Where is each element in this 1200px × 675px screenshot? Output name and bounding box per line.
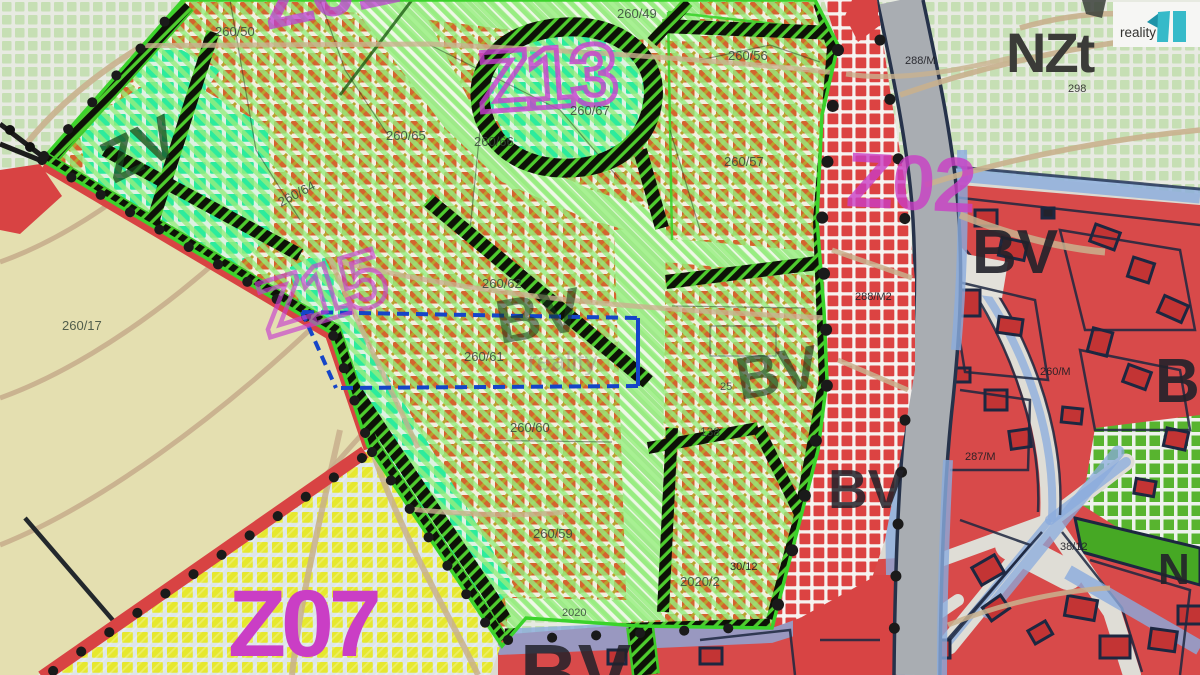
svg-text:260/50: 260/50: [215, 24, 255, 39]
svg-text:260/M: 260/M: [1040, 366, 1071, 378]
svg-text:260/56: 260/56: [728, 48, 768, 63]
svg-text:BV: BV: [520, 628, 631, 675]
svg-text:25: 25: [720, 381, 732, 393]
svg-text:260/49: 260/49: [617, 6, 657, 21]
svg-text:BV: BV: [828, 458, 905, 520]
svg-text:BV: BV: [972, 218, 1058, 287]
svg-text:298: 298: [1068, 83, 1086, 95]
svg-text:38/12: 38/12: [1060, 541, 1088, 553]
svg-text:260/65: 260/65: [386, 128, 426, 143]
svg-text:2020/2: 2020/2: [680, 574, 720, 589]
svg-text:N: N: [1158, 545, 1190, 594]
svg-text:Z07: Z07: [228, 571, 378, 675]
svg-text:260/59: 260/59: [533, 526, 573, 541]
svg-text:BV: BV: [1155, 347, 1200, 416]
svg-text:260/67: 260/67: [570, 103, 610, 118]
svg-text:NZt: NZt: [1006, 21, 1095, 84]
svg-text:260/60: 260/60: [510, 420, 550, 435]
svg-text:Z02: Z02: [844, 135, 977, 230]
svg-text:260/66: 260/66: [474, 134, 514, 149]
svg-text:reality: reality: [1120, 25, 1156, 40]
svg-text:287/M: 287/M: [965, 451, 996, 463]
svg-text:260/17: 260/17: [62, 318, 102, 333]
svg-text:260/62: 260/62: [482, 276, 522, 291]
svg-text:138: 138: [700, 425, 720, 439]
svg-text:BV: BV: [731, 332, 825, 412]
svg-text:288/M2: 288/M2: [855, 291, 892, 303]
svg-text:2020: 2020: [562, 607, 586, 619]
svg-text:288/M: 288/M: [905, 55, 936, 67]
svg-text:260/57: 260/57: [724, 154, 764, 169]
svg-text:260/61: 260/61: [464, 349, 504, 364]
svg-text:30/12: 30/12: [730, 561, 758, 573]
